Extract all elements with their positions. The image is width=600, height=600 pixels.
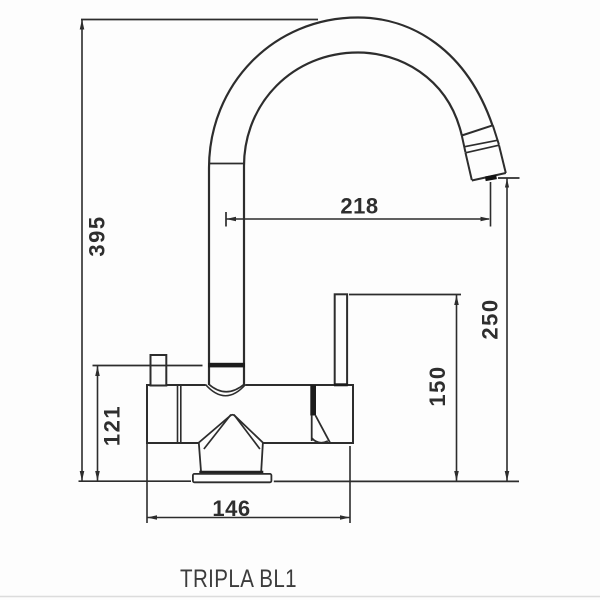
- svg-text:TRIPLA BL1: TRIPLA BL1: [180, 565, 297, 593]
- svg-text:218: 218: [340, 194, 378, 219]
- svg-text:250: 250: [478, 298, 503, 339]
- svg-text:121: 121: [100, 405, 125, 446]
- svg-text:150: 150: [425, 365, 450, 406]
- svg-text:146: 146: [212, 496, 250, 521]
- svg-text:395: 395: [85, 215, 110, 256]
